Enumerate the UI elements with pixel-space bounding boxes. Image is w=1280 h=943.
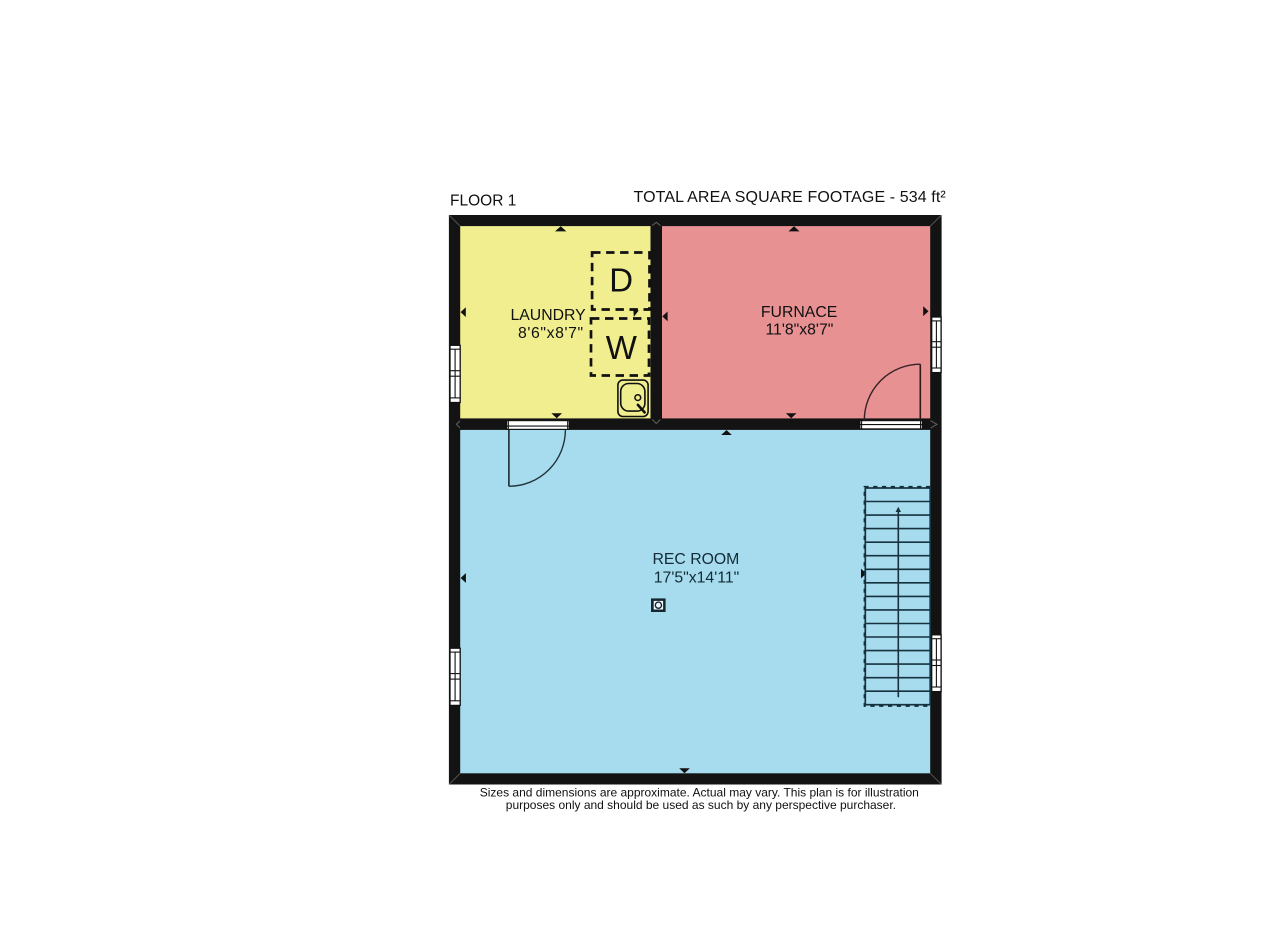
svg-text:8'6"x8'7": 8'6"x8'7" [518, 325, 584, 342]
svg-text:REC ROOM: REC ROOM [652, 551, 739, 568]
svg-text:D: D [609, 261, 633, 298]
svg-text:W: W [606, 329, 638, 366]
svg-text:LAUNDRY: LAUNDRY [510, 307, 586, 324]
svg-text:FURNACE: FURNACE [761, 304, 837, 321]
svg-text:FLOOR 1: FLOOR 1 [450, 193, 516, 210]
svg-text:11'8"x8'7": 11'8"x8'7" [765, 322, 833, 339]
svg-text:17'5"x14'11": 17'5"x14'11" [654, 569, 739, 586]
svg-text:TOTAL AREA SQUARE FOOTAGE - 53: TOTAL AREA SQUARE FOOTAGE - 534 ft² [634, 189, 947, 206]
svg-text:purposes only and should be us: purposes only and should be used as such… [506, 798, 896, 812]
